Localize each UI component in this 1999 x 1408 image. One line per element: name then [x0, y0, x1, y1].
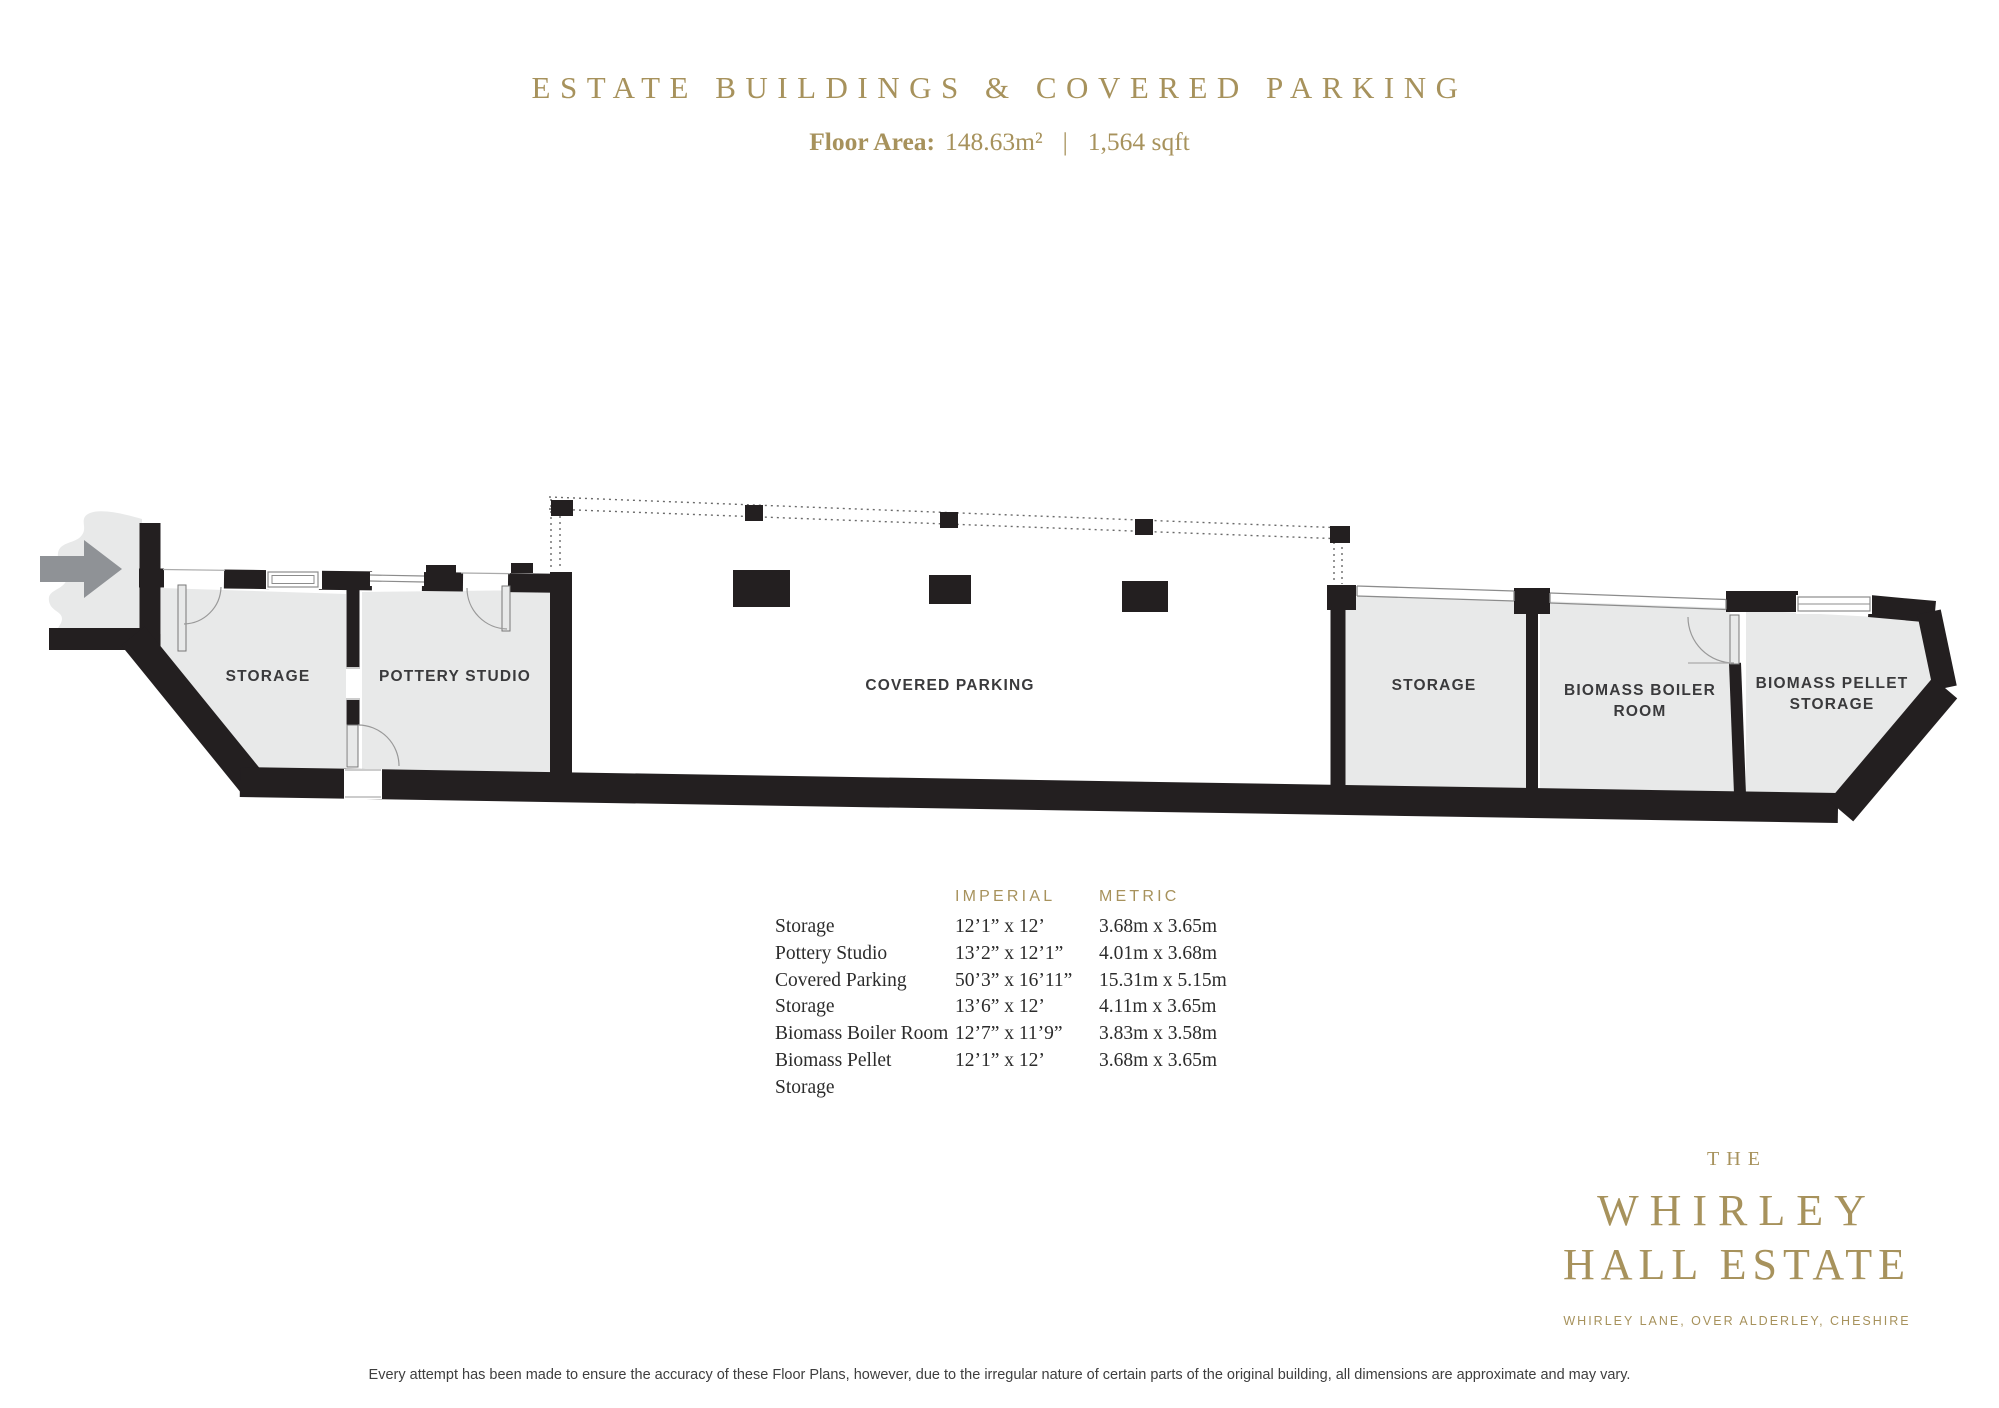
canopy-boundary: [549, 497, 1345, 584]
floor-storage-right: [1342, 596, 1526, 793]
row-name: Biomass Pellet Storage: [775, 1048, 955, 1102]
estate-branding: THE WHIRLEY HALL ESTATE WHIRLEY LANE, OV…: [1490, 1148, 1984, 1328]
canopy-post: [1330, 526, 1350, 543]
table-row: Covered Parking 50’3” x 16’11” 15.31m x …: [775, 968, 1269, 995]
label-biomass-pellet-1: BIOMASS PELLET: [1756, 675, 1909, 692]
row-imperial: 12’1” x 12’: [955, 1048, 1099, 1102]
pillar: [733, 570, 790, 607]
window-storage-left: [266, 570, 322, 589]
label-covered-parking: COVERED PARKING: [865, 677, 1034, 694]
row-metric: 15.31m x 5.15m: [1099, 968, 1269, 995]
row-name: Biomass Boiler Room: [775, 1021, 955, 1048]
row-metric: 4.01m x 3.68m: [1099, 941, 1269, 968]
row-name: Storage: [775, 914, 955, 941]
canopy-posts: [551, 500, 1350, 543]
canopy-post: [551, 500, 573, 516]
floorplan-page: ESTATE BUILDINGS & COVERED PARKING Floor…: [0, 0, 1999, 1408]
label-storage-left: STORAGE: [226, 668, 311, 685]
label-biomass-boiler-2: ROOM: [1613, 703, 1666, 720]
brand-prefix: THE: [1490, 1148, 1984, 1171]
row-name: Covered Parking: [775, 968, 955, 995]
canopy-post: [1135, 519, 1153, 535]
disclaimer-text: Every attempt has been made to ensure th…: [0, 1367, 1999, 1383]
brand-name-line1: WHIRLEY: [1490, 1185, 1984, 1236]
row-imperial: 12’7” x 11’9”: [955, 1021, 1099, 1048]
window-pellet: [1796, 595, 1872, 614]
table-row: Storage 12’1” x 12’ 3.68m x 3.65m: [775, 914, 1269, 941]
parking-pillars: [733, 570, 1168, 612]
window-pottery: [370, 572, 424, 586]
brand-address: WHIRLEY LANE, OVER ALDERLEY, CHESHIRE: [1490, 1314, 1984, 1328]
header-metric: METRIC: [1099, 888, 1269, 906]
table-row: Storage 13’6” x 12’ 4.11m x 3.65m: [775, 994, 1269, 1021]
row-metric: 3.83m x 3.58m: [1099, 1021, 1269, 1048]
table-row: Biomass Pellet Storage 12’1” x 12’ 3.68m…: [775, 1048, 1269, 1102]
table-row: Pottery Studio 13’2” x 12’1” 4.01m x 3.6…: [775, 941, 1269, 968]
pillar: [929, 575, 971, 604]
dimensions-table: IMPERIAL METRIC Storage 12’1” x 12’ 3.68…: [775, 888, 1269, 1102]
pillar: [1122, 581, 1168, 612]
dimensions-header: IMPERIAL METRIC: [775, 888, 1269, 906]
brand-name-line2: HALL ESTATE: [1490, 1239, 1984, 1290]
row-name: Pottery Studio: [775, 941, 955, 968]
label-biomass-pellet-2: STORAGE: [1790, 696, 1875, 713]
label-storage-right: STORAGE: [1392, 677, 1477, 694]
canopy-post: [940, 512, 958, 528]
header-imperial: IMPERIAL: [955, 888, 1099, 906]
row-imperial: 13’2” x 12’1”: [955, 941, 1099, 968]
label-pottery-studio: POTTERY STUDIO: [379, 668, 531, 685]
row-metric: 4.11m x 3.65m: [1099, 994, 1269, 1021]
row-metric: 3.68m x 3.65m: [1099, 1048, 1269, 1102]
row-imperial: 12’1” x 12’: [955, 914, 1099, 941]
label-biomass-boiler-1: BIOMASS BOILER: [1564, 682, 1716, 699]
canopy-post: [745, 505, 763, 521]
row-metric: 3.68m x 3.65m: [1099, 914, 1269, 941]
row-imperial: 50’3” x 16’11”: [955, 968, 1099, 995]
header-spacer: [775, 888, 955, 906]
row-name: Storage: [775, 994, 955, 1021]
table-row: Biomass Boiler Room 12’7” x 11’9” 3.83m …: [775, 1021, 1269, 1048]
row-imperial: 13’6” x 12’: [955, 994, 1099, 1021]
